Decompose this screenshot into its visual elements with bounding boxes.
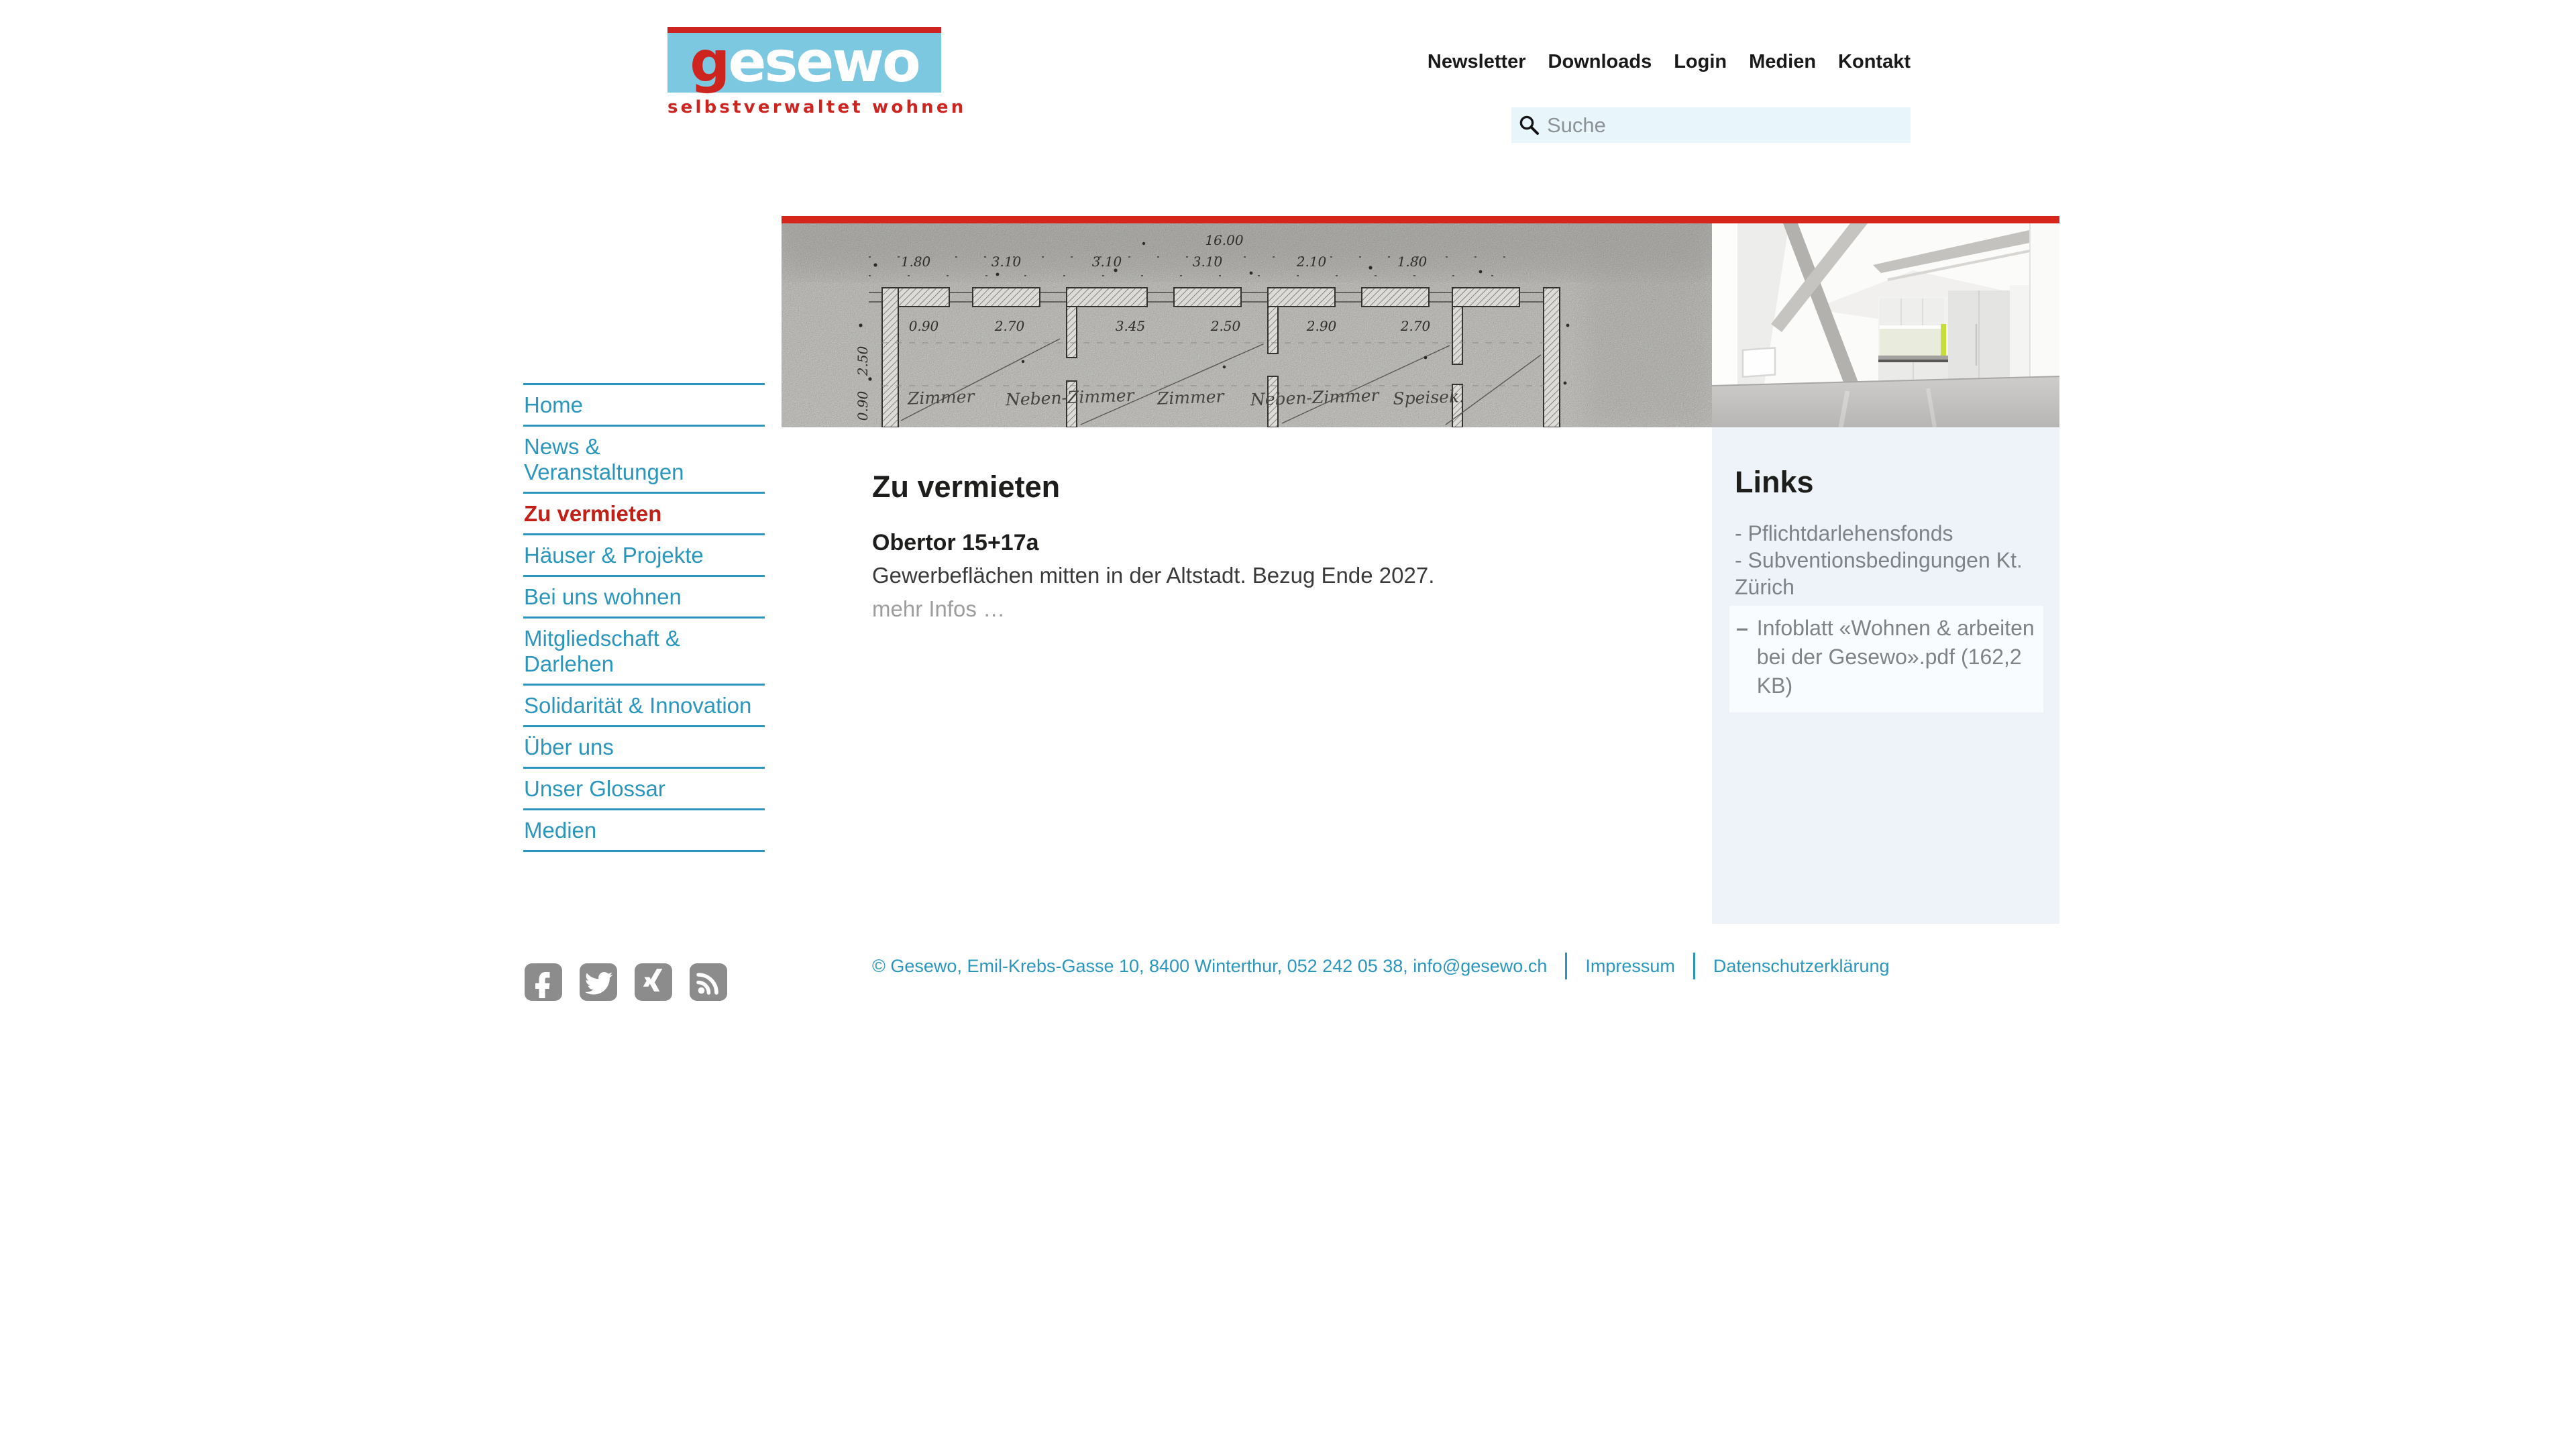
blueprint-dim: 2.90 xyxy=(1306,318,1337,334)
logo-letters-rest: esewo xyxy=(728,29,918,95)
sidebar-item-solidaritaet-innovation[interactable]: Solidarität & Innovation xyxy=(523,686,765,727)
blueprint-dim: 3.10 xyxy=(991,254,1022,270)
banner-images: 16.00 1.80 3.10 3.10 3.10 2.10 1.80 xyxy=(782,223,2059,427)
page: gesewo selbstverwaltet wohnen Newsletter… xyxy=(0,0,2576,1449)
listing-item: Obertor 15+17a Gewerbeflächen mitten in … xyxy=(872,530,1664,622)
sidebar-item-medien[interactable]: Medien xyxy=(523,810,765,852)
social-links xyxy=(525,963,727,1001)
blueprint-dim: 3.45 xyxy=(1116,318,1146,334)
top-nav-login[interactable]: Login xyxy=(1674,51,1727,73)
footer-separator xyxy=(1565,953,1567,979)
logo-wordmark: gesewo xyxy=(667,33,941,93)
footer-separator xyxy=(1693,953,1695,979)
blueprint-dim: 1.80 xyxy=(901,254,931,270)
xing-icon xyxy=(635,963,672,1001)
top-nav-newsletter[interactable]: Newsletter xyxy=(1428,51,1526,73)
blueprint-dim: 2.70 xyxy=(994,318,1025,334)
listing-description: Gewerbeflächen mitten in der Altstadt. B… xyxy=(872,563,1664,588)
sidebar-item-bei-uns-wohnen[interactable]: Bei uns wohnen xyxy=(523,577,765,619)
top-nav-medien[interactable]: Medien xyxy=(1749,51,1816,73)
link-pflichtdarlehensfonds[interactable]: - Pflichtdarlehensfonds xyxy=(1735,520,2043,547)
blueprint-dim: 3.10 xyxy=(1193,254,1223,270)
copyright-text: © Gesewo, Emil-Krebs-Gasse 10, 8400 Wint… xyxy=(872,956,1547,977)
search-icon[interactable] xyxy=(1517,113,1542,138)
twitter-link[interactable] xyxy=(580,963,617,1001)
page-title: Zu vermieten xyxy=(872,470,1664,504)
listing-title: Obertor 15+17a xyxy=(872,530,1664,556)
logo-tagline: selbstverwaltet wohnen xyxy=(667,97,941,117)
banner-red-bar xyxy=(782,216,2059,223)
blueprint-dim: 2.50 xyxy=(1210,318,1241,334)
rss-link[interactable] xyxy=(690,963,727,1001)
main-content: Zu vermieten Obertor 15+17a Gewerbefläch… xyxy=(872,470,1664,622)
blueprint-image: 16.00 1.80 3.10 3.10 3.10 2.10 1.80 xyxy=(782,223,1712,427)
sidebar-item-unser-glossar[interactable]: Unser Glossar xyxy=(523,769,765,810)
rss-icon xyxy=(690,963,727,1001)
interior-photo xyxy=(1712,223,2059,427)
file-download-link[interactable]: Infoblatt «Wohnen & arbeiten bei der Ges… xyxy=(1757,614,2035,700)
blueprint-room-label: Zimmer xyxy=(906,386,976,409)
blueprint-room-label: Speisek. xyxy=(1393,386,1465,409)
blueprint-dim: 2.10 xyxy=(1296,254,1327,270)
facebook-icon xyxy=(525,963,562,1001)
blueprint-dim: 0.90 xyxy=(909,318,939,334)
search-input[interactable] xyxy=(1546,107,1911,143)
links-panel: Links - Pflichtdarlehensfonds - Subventi… xyxy=(1712,427,2059,924)
sidebar-nav: Home News & Veranstaltungen Zu vermieten… xyxy=(523,383,765,852)
blueprint-dim: 2.50 xyxy=(855,345,871,376)
links-panel-title: Links xyxy=(1735,465,2043,500)
sidebar-item-home[interactable]: Home xyxy=(523,385,765,427)
impressum-link[interactable]: Impressum xyxy=(1585,956,1675,977)
file-download-box[interactable]: – Infoblatt «Wohnen & arbeiten bei der G… xyxy=(1729,606,2043,712)
blueprint-dim: 2.70 xyxy=(1400,318,1431,334)
facebook-link[interactable] xyxy=(525,963,562,1001)
sidebar-item-ueber-uns[interactable]: Über uns xyxy=(523,727,765,769)
blueprint-dim: 3.10 xyxy=(1092,254,1122,270)
sidebar-item-haeuser-projekte[interactable]: Häuser & Projekte xyxy=(523,535,765,577)
top-nav-downloads[interactable]: Downloads xyxy=(1548,51,1652,73)
twitter-icon xyxy=(580,963,617,1001)
top-nav-kontakt[interactable]: Kontakt xyxy=(1838,51,1911,73)
top-nav: Newsletter Downloads Login Medien Kontak… xyxy=(1428,51,1911,73)
search-box[interactable] xyxy=(1511,107,1911,143)
sidebar-item-news-veranstaltungen[interactable]: News & Veranstaltungen xyxy=(523,427,765,494)
blueprint-total-dim: 16.00 xyxy=(1205,232,1244,248)
footer: © Gesewo, Emil-Krebs-Gasse 10, 8400 Wint… xyxy=(872,953,1890,979)
file-dash: – xyxy=(1736,614,1748,700)
more-info-link[interactable]: mehr Infos … xyxy=(872,596,1005,622)
header-banner: 16.00 1.80 3.10 3.10 3.10 2.10 1.80 xyxy=(782,216,2059,427)
logo[interactable]: gesewo selbstverwaltet wohnen xyxy=(667,27,941,117)
blueprint-room-label: Zimmer xyxy=(1156,386,1226,409)
sidebar-item-zu-vermieten[interactable]: Zu vermieten xyxy=(523,494,765,535)
datenschutz-link[interactable]: Datenschutzerklärung xyxy=(1713,956,1890,977)
blueprint-dim: 1.80 xyxy=(1397,254,1428,270)
link-subventionsbedingungen[interactable]: - Subventionsbedingungen Kt. Zürich xyxy=(1735,547,2043,600)
sidebar-item-mitgliedschaft-darlehen[interactable]: Mitgliedschaft & Darlehen xyxy=(523,619,765,686)
blueprint-dim: 0.90 xyxy=(855,390,871,421)
xing-link[interactable] xyxy=(635,963,672,1001)
logo-letter-g: g xyxy=(690,29,728,95)
